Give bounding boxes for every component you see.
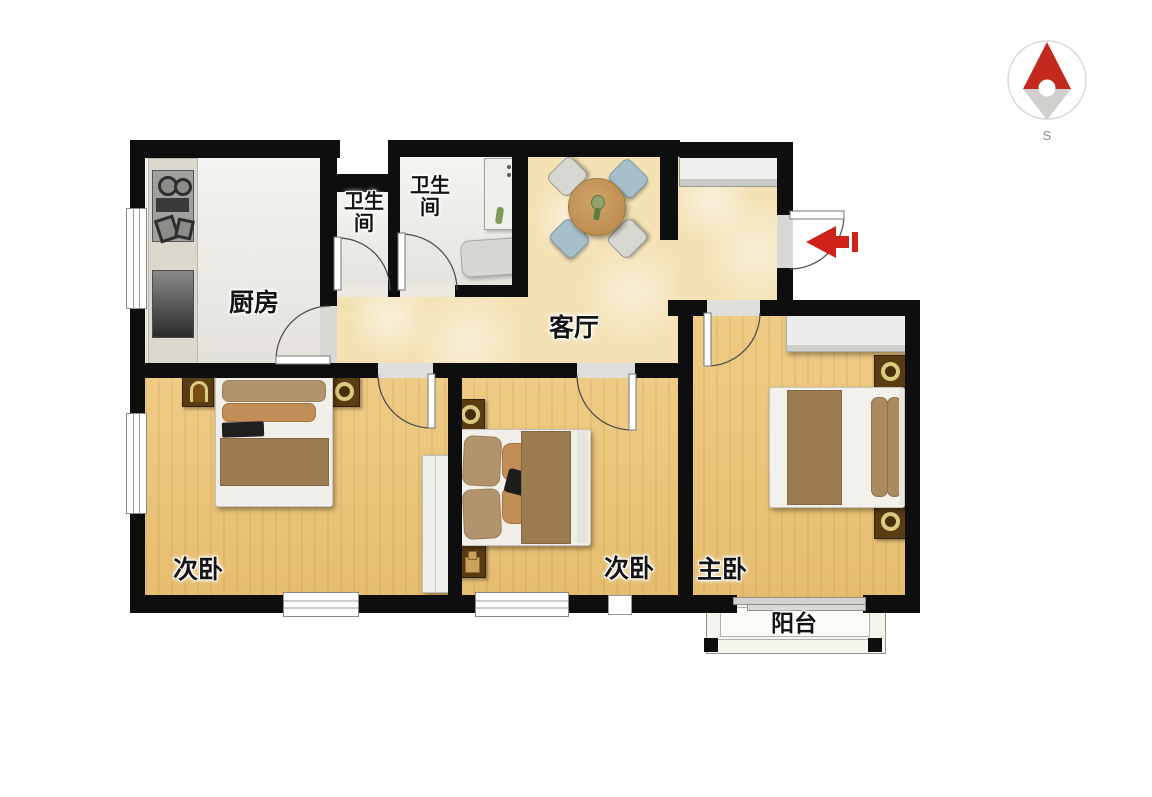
bedroom-middle-door-arc	[577, 375, 632, 430]
bedroom-middle-door-leaf	[629, 374, 636, 430]
kitchen-door-arc	[276, 306, 330, 360]
bath-large-door-arc	[401, 234, 457, 290]
entry-door-leaf	[790, 211, 844, 219]
entry-arrow-icon	[806, 226, 858, 258]
compass-icon: S	[1008, 41, 1086, 143]
kitchen-door-leaf	[276, 356, 330, 364]
living-room-label: 客厅	[549, 308, 599, 344]
bath-small-label: 卫生间	[340, 192, 388, 235]
master-bedroom-label: 主卧	[697, 550, 747, 586]
bedroom-middle-label: 次卧	[604, 549, 654, 585]
bath-large-label: 卫生间	[406, 176, 454, 219]
door-swings-layer: S	[0, 0, 1152, 797]
master-door-arc	[707, 313, 760, 366]
bedroom-left-label: 次卧	[173, 550, 223, 586]
bath-large-door-leaf	[398, 233, 405, 290]
kitchen-label: 厨房	[229, 283, 279, 319]
bath-small-door-arc	[338, 238, 390, 290]
compass-south-label: S	[1043, 128, 1052, 143]
bedroom-left-door-arc	[378, 375, 431, 428]
bedroom-left-door-leaf	[428, 374, 435, 428]
bath-small-door-leaf	[334, 237, 341, 290]
master-door-leaf	[704, 313, 711, 366]
balcony-label: 阳台	[771, 604, 817, 638]
floor-plan-canvas: S 厨房 卫生间 卫生间 客厅 次卧 次卧 主卧 阳台	[0, 0, 1152, 797]
